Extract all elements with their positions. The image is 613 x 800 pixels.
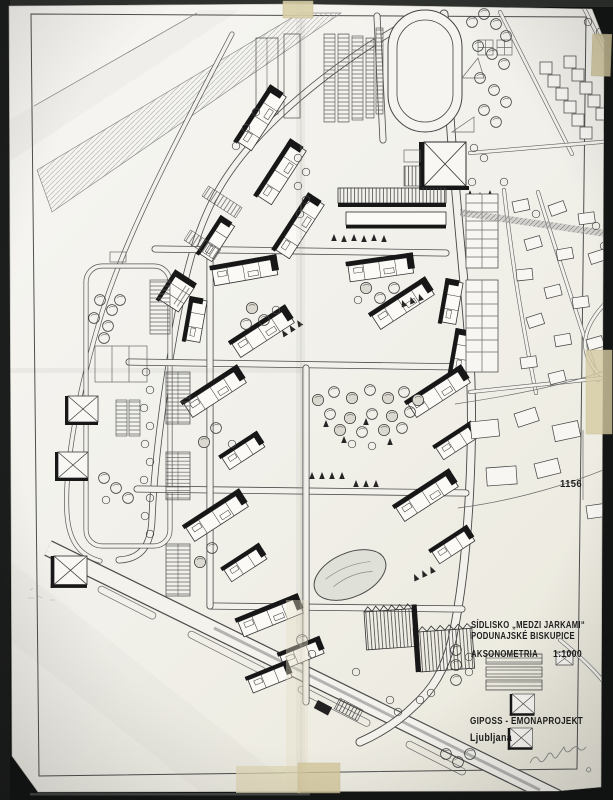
site-plan-drawing: SÍDLISKO „MEDZI JARKAMI“ PODUNAJSKÉ BISK… (0, 0, 613, 800)
scanned-photo: SÍDLISKO „MEDZI JARKAMI“ PODUNAJSKÉ BISK… (0, 0, 613, 800)
photo-vignette (0, 0, 613, 800)
